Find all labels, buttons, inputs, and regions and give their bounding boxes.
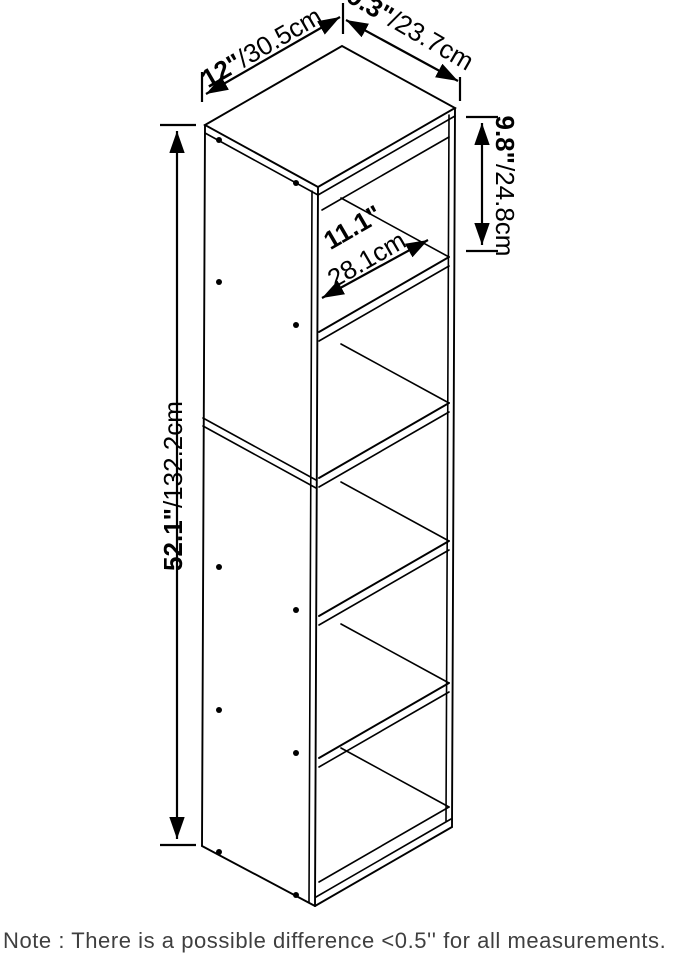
depth-dimension: 9.3"/23.7cm	[342, 0, 479, 101]
cube-height-dimension: 9.8"/24.8cm	[466, 116, 520, 257]
cabinet-outline	[202, 46, 455, 906]
cube5-floor-edge	[341, 748, 449, 807]
bookshelf-diagram: 12"/30.5cm 9.3"/23.7cm 9.8"/24.8cm 11.1"…	[0, 0, 679, 958]
diagram-canvas: 12"/30.5cm 9.3"/23.7cm 9.8"/24.8cm 11.1"…	[0, 0, 679, 958]
cube-height-dimension-label: 9.8"/24.8cm	[490, 116, 520, 257]
measurement-note: Note : There is a possible difference <0…	[3, 928, 679, 954]
total-height-dimension-label: 52.1"/132.2cm	[158, 401, 188, 571]
diagonal-dimension: 11.1" 28.1cm	[318, 199, 428, 298]
depth-dimension-label: 9.3"/23.7cm	[342, 0, 479, 76]
cube4-floor-edge	[341, 624, 449, 683]
width-dimension-label: 12"/30.5cm	[196, 1, 327, 94]
pin-holes	[216, 137, 299, 898]
cube3-floor-edge	[341, 482, 449, 541]
stack-seam	[203, 418, 316, 480]
total-height-dimension: 52.1"/132.2cm	[158, 125, 196, 845]
cube2-floor-edge	[341, 344, 449, 403]
